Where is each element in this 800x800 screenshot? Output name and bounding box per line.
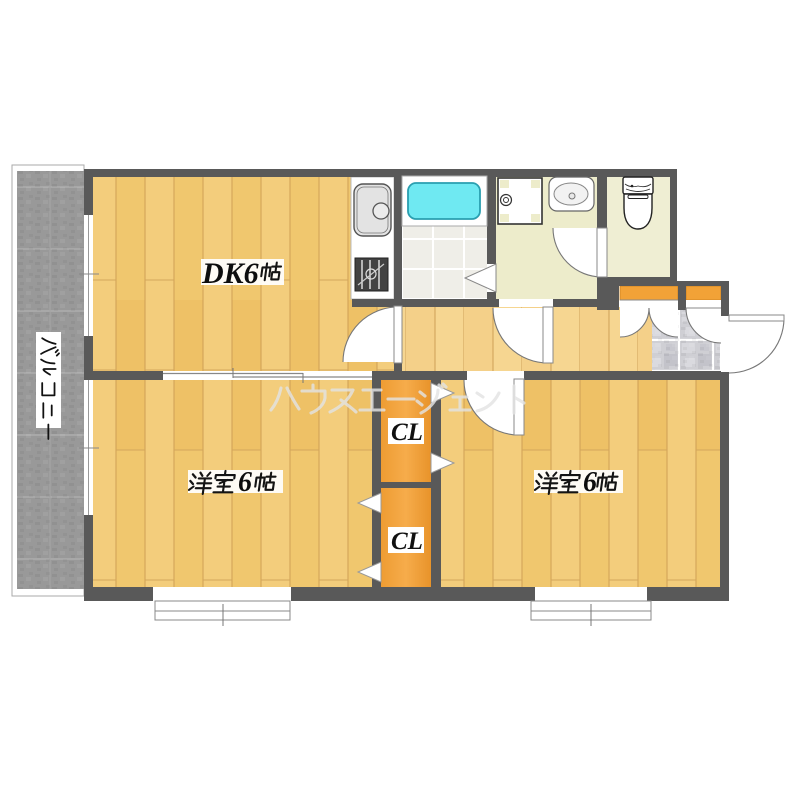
svg-text:6: 6 xyxy=(238,467,252,498)
svg-text:CL: CL xyxy=(391,419,423,446)
svg-text:CL: CL xyxy=(391,528,423,555)
svg-text:6: 6 xyxy=(583,467,597,498)
svg-text:DK6: DK6 xyxy=(201,257,259,290)
